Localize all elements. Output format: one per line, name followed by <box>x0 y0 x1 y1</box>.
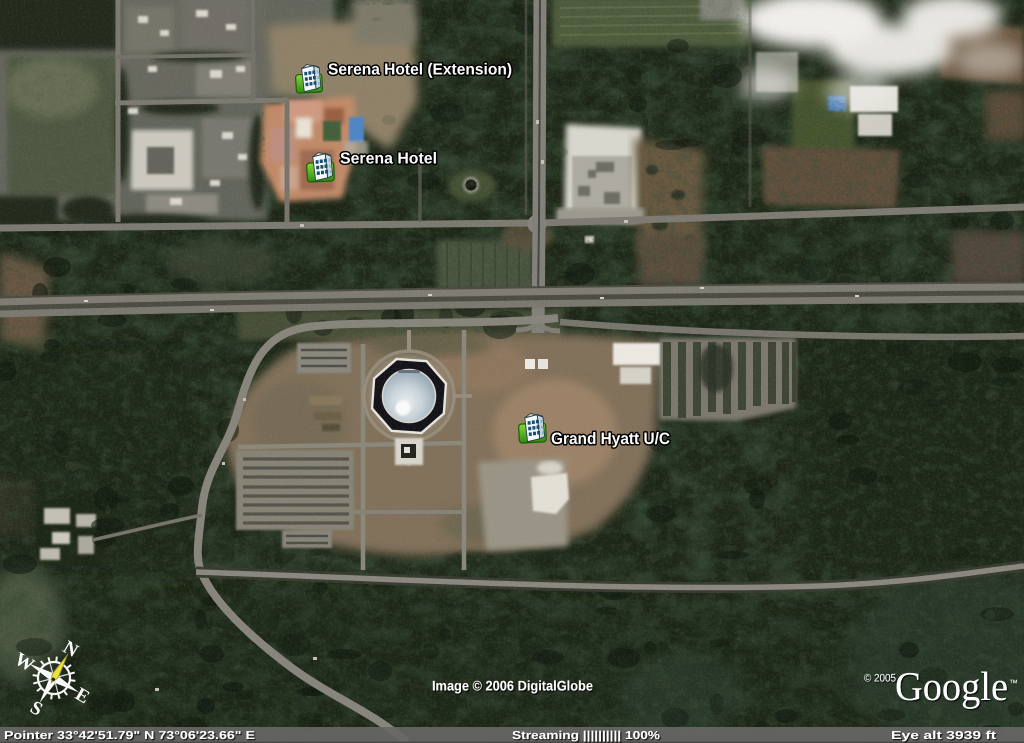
svg-text:Grand Hyatt U/C: Grand Hyatt U/C <box>551 430 670 448</box>
svg-text:Serena Hotel (Extension): Serena Hotel (Extension) <box>328 62 512 79</box>
svg-text:Google: Google <box>895 663 1008 709</box>
svg-text:© 2005: © 2005 <box>864 673 896 685</box>
svg-text:Eye alt 3939 ft: Eye alt 3939 ft <box>891 730 996 742</box>
svg-text:Streaming |||||||||| 100%: Streaming |||||||||| 100% <box>512 730 660 742</box>
svg-text:™: ™ <box>1009 678 1018 688</box>
svg-text:Serena Hotel: Serena Hotel <box>340 151 437 168</box>
svg-text:Image © 2006 DigitalGlobe: Image © 2006 DigitalGlobe <box>432 678 593 694</box>
svg-text:Pointer 33°42'51.79" N 73°06': Pointer 33°42'51.79" N 73°06'23.66" E <box>4 730 255 742</box>
